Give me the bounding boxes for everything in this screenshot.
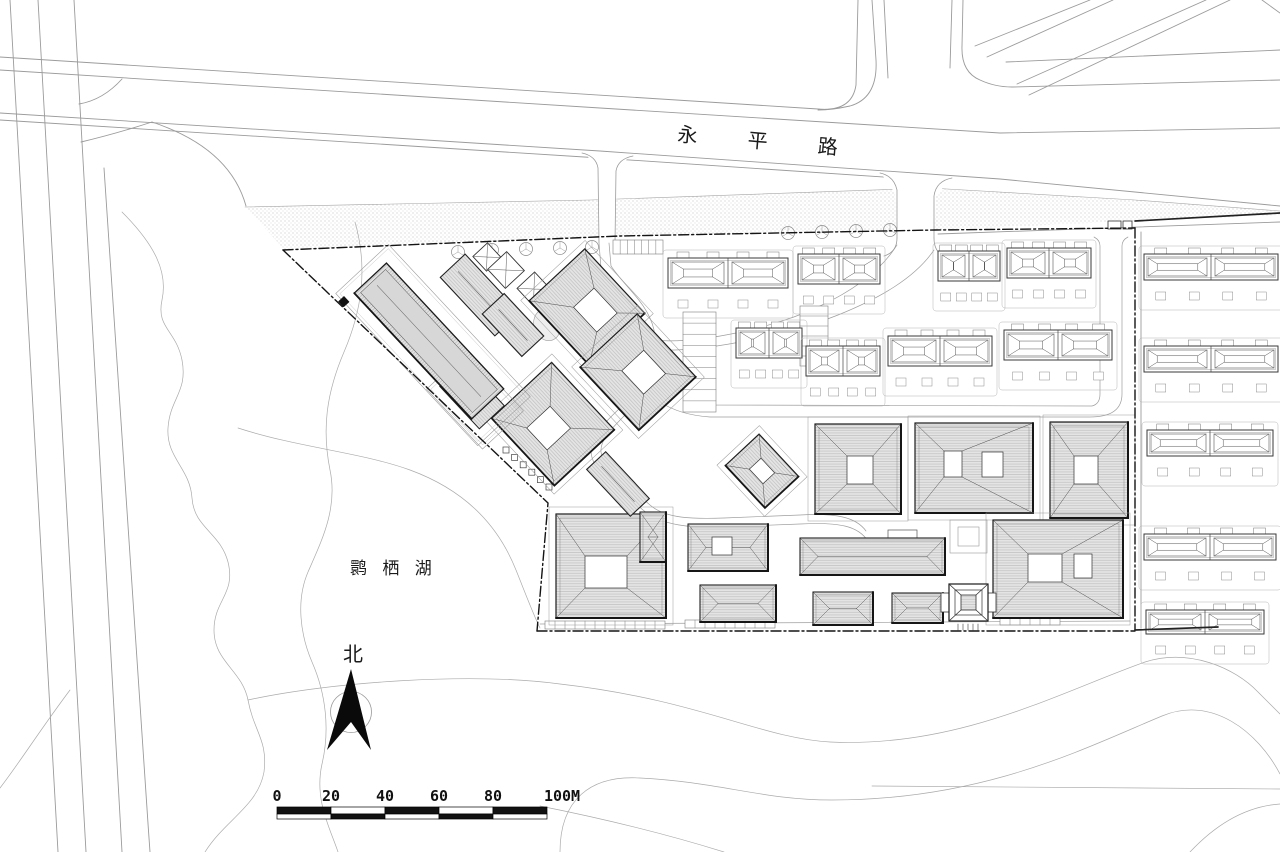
scale-seg — [331, 814, 385, 819]
context-building — [883, 328, 997, 396]
context-building — [793, 246, 885, 314]
site-building-courtyard — [1043, 415, 1135, 525]
context-building — [663, 250, 793, 318]
context-building — [1142, 422, 1278, 486]
context-building — [1139, 246, 1280, 310]
north-label: 北 — [343, 642, 363, 666]
site-building-bar — [640, 512, 666, 562]
plaza — [950, 520, 987, 553]
scale-40: 40 — [376, 787, 394, 805]
site-building-bar — [800, 530, 945, 575]
scale-60: 60 — [430, 787, 448, 805]
site-building-rot-court — [717, 426, 807, 517]
tick — [520, 462, 526, 468]
plan-linework — [0, 0, 1280, 852]
scale-seg — [277, 814, 331, 819]
site-plan-canvas: 永 平 路 鹮 栖 湖 北 0 20 40 60 80 100M — [0, 0, 1280, 852]
context-building — [1139, 526, 1280, 590]
scale-seg — [493, 814, 547, 819]
tick — [512, 454, 518, 460]
scale-bar-labels: 0 20 40 60 80 100M — [272, 787, 580, 805]
site-building-courtyard — [808, 417, 908, 521]
site-buildings — [336, 240, 1135, 630]
tick — [503, 447, 509, 453]
north-arrow-icon — [327, 669, 371, 750]
site-building-bar — [700, 585, 776, 622]
scale-seg — [439, 814, 493, 819]
scale-100m: 100M — [544, 787, 580, 805]
site-building-bar — [688, 524, 768, 571]
sidewalk-verge-strip — [245, 188, 1280, 250]
scale-seg — [277, 807, 331, 814]
context-building — [1002, 240, 1096, 308]
site-plan-drawing: 永 平 路 鹮 栖 湖 北 0 20 40 60 80 100M — [0, 0, 1280, 852]
site-building-courtyard — [908, 416, 1040, 520]
scale-bar — [277, 807, 547, 819]
scale-seg — [439, 807, 493, 814]
context-building — [1139, 338, 1280, 402]
tick — [546, 484, 552, 490]
scale-seg — [493, 807, 547, 814]
scale-seg — [385, 807, 439, 814]
scale-seg — [385, 814, 439, 819]
context-building — [999, 322, 1117, 390]
parking-row — [683, 312, 716, 412]
parking-row — [613, 240, 663, 254]
scale-0: 0 — [272, 787, 281, 805]
scale-20: 20 — [322, 787, 340, 805]
context-building — [801, 338, 885, 406]
context-building — [1141, 602, 1269, 664]
plaza — [958, 527, 979, 546]
scale-seg — [331, 807, 385, 814]
site-building-bar — [892, 593, 943, 623]
huanqi-lake-label: 鹮 栖 湖 — [350, 559, 437, 579]
scale-80: 80 — [484, 787, 502, 805]
site-building-rot-bar — [587, 452, 650, 517]
context-building — [731, 320, 807, 388]
site-building-bar — [813, 592, 873, 625]
pagoda-pavilion — [941, 584, 996, 630]
yongping-road-label: 永 平 路 — [677, 122, 861, 161]
context-building — [933, 243, 1005, 311]
north-arrow — [327, 669, 372, 750]
site-building-courtyard — [986, 513, 1130, 625]
